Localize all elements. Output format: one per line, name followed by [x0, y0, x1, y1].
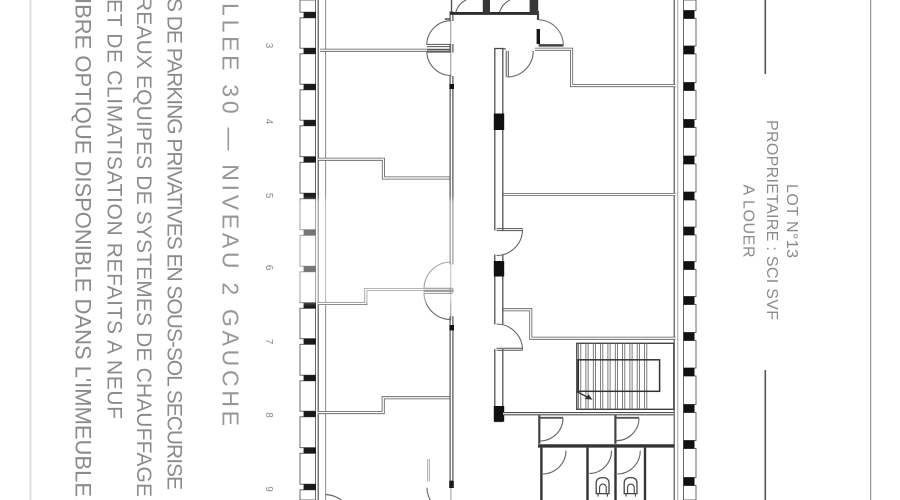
svg-text:REAUX EQUIPES DE SYSTEMES DE C: REAUX EQUIPES DE SYSTEMES DE CHAUFFAGE [132, 0, 155, 497]
svg-text:4: 4 [263, 119, 274, 125]
svg-text:PROPRIETAIRE : SCI SVF: PROPRIETAIRE : SCI SVF [763, 120, 780, 320]
svg-text:9: 9 [263, 486, 274, 492]
svg-text:7: 7 [263, 339, 274, 345]
svg-text:6: 6 [263, 265, 274, 271]
svg-text:S DE PARKING PRIVATIVES EN SOU: S DE PARKING PRIVATIVES EN SOUS-SOL SECU… [163, 0, 186, 490]
svg-text:5: 5 [263, 193, 274, 199]
svg-text:A LOUER: A LOUER [740, 185, 757, 258]
svg-text:8: 8 [263, 412, 274, 418]
svg-text:IBRE OPTIQUE DISPONIBLE DANS L: IBRE OPTIQUE DISPONIBLE DANS L'IMMEUBLE [71, 0, 96, 497]
svg-text:ET DE CLIMATISATION REFAITS A: ET DE CLIMATISATION REFAITS A NEUF [103, 0, 126, 419]
svg-text:3: 3 [263, 43, 274, 49]
svg-text:LOT N°13: LOT N°13 [783, 184, 800, 258]
svg-text:ALLEE 30 — NIVEAU 2 GAUCHE: ALLEE 30 — NIVEAU 2 GAUCHE [218, 0, 244, 426]
